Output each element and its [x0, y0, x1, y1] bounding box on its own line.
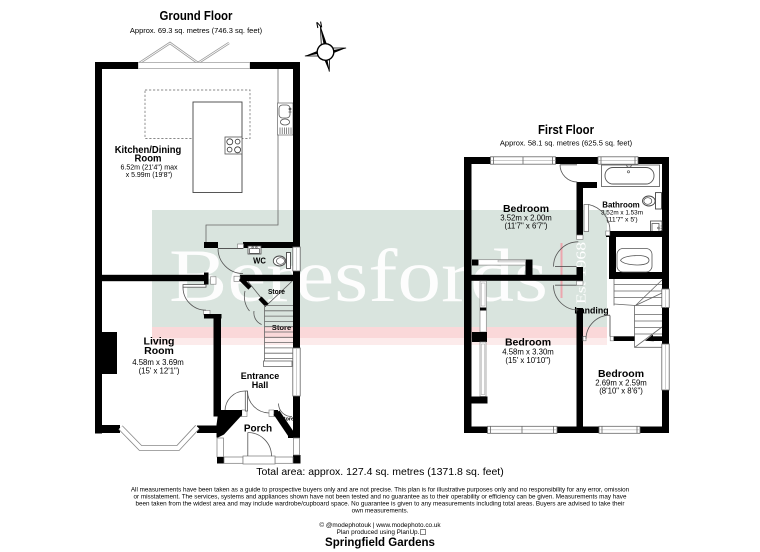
svg-text:3.52m x 1.53m: 3.52m x 1.53m [601, 210, 643, 217]
svg-text:(11'7" x 5'): (11'7" x 5') [606, 217, 637, 224]
svg-text:Approx. 69.3 sq. metres (746.3: Approx. 69.3 sq. metres (746.3 sq. feet) [130, 26, 263, 35]
svg-text:own measurements.: own measurements. [352, 508, 409, 515]
svg-text:Springfield Gardens: Springfield Gardens [325, 537, 435, 549]
svg-text:Total area: approx. 127.4 sq.: Total area: approx. 127.4 sq. metres (13… [256, 466, 503, 478]
svg-text:First Floor: First Floor [538, 123, 594, 137]
svg-text:(11'7" x 6'7"): (11'7" x 6'7") [504, 222, 547, 231]
svg-text:WC: WC [253, 256, 266, 266]
svg-text:Store: Store [280, 417, 294, 423]
svg-text:Bathroom: Bathroom [602, 200, 640, 210]
svg-text:Store: Store [272, 323, 291, 332]
svg-text:Room: Room [144, 345, 174, 357]
svg-text:Ground Floor: Ground Floor [160, 9, 233, 23]
svg-text:or misstatement. The services,: or misstatement. The services, systems a… [134, 494, 627, 501]
svg-text:All measurements have been tak: All measurements have been taken as a gu… [131, 487, 630, 494]
svg-text:Approx. 58.1 sq. metres (625.5: Approx. 58.1 sq. metres (625.5 sq. feet) [500, 139, 633, 148]
svg-text:© @modephotouk | www.modephoto: © @modephotouk | www.modephoto.co.uk [319, 521, 441, 529]
svg-text:Store: Store [268, 287, 285, 296]
svg-text:x 5.99m (19'8"): x 5.99m (19'8") [126, 170, 173, 179]
svg-text:Hall: Hall [252, 380, 269, 390]
svg-text:(15' x 12'1"): (15' x 12'1") [139, 367, 180, 376]
svg-text:(15' x 10'10"): (15' x 10'10") [505, 356, 551, 365]
svg-text:(8'10" x 8'6"): (8'10" x 8'6") [599, 387, 643, 396]
svg-text:been taken from the widest are: been taken from the widest area and may … [136, 501, 625, 508]
svg-text:Plan produced using PlanUp.: Plan produced using PlanUp. [337, 529, 420, 536]
